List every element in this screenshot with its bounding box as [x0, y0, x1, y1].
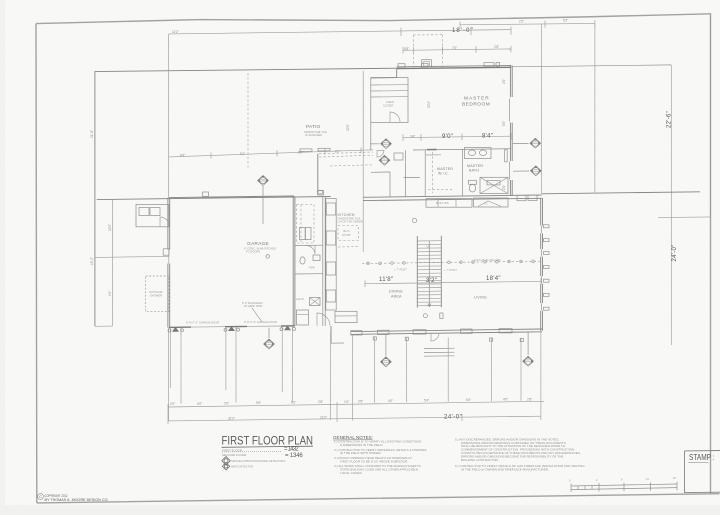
- svg-text:6'0": 6'0": [291, 401, 296, 405]
- svg-text:9'2": 9'2": [240, 152, 245, 156]
- svg-text:IN THE FIELD WITH OWNER.: IN THE FIELD WITH OWNER.: [340, 451, 382, 455]
- svg-text:8'4": 8'4": [482, 133, 493, 139]
- svg-text:STAMP :: STAMP :: [689, 453, 715, 462]
- svg-text:15'-2": 15'-2": [90, 257, 94, 265]
- svg-text:5'4": 5'4": [466, 398, 471, 402]
- svg-text:1'0": 1'0": [344, 400, 349, 404]
- svg-text:GARAGE: GARAGE: [247, 241, 269, 247]
- svg-text:4'0": 4'0": [388, 399, 393, 403]
- svg-text:9'0": 9'0": [197, 402, 202, 406]
- svg-text:HEAT DETECTOR: HEAT DETECTOR: [231, 465, 253, 469]
- svg-text:IN SAND BED: IN SAND BED: [305, 133, 322, 137]
- svg-text:8'4": 8'4": [180, 154, 185, 158]
- svg-text:5'2": 5'2": [563, 19, 568, 23]
- svg-text:UP: UP: [427, 245, 431, 249]
- svg-text:+ 7" POST: + 7" POST: [444, 268, 457, 272]
- svg-text:31'0": 31'0": [228, 417, 235, 421]
- svg-text:11'2": 11'2": [172, 30, 179, 34]
- svg-text:2'8": 2'8": [358, 400, 363, 404]
- svg-text:2'0": 2'0": [170, 402, 175, 406]
- svg-text:+ 7" POST: + 7" POST: [394, 268, 407, 272]
- svg-text:= 1432: = 1432: [284, 446, 299, 452]
- svg-text:5'4": 5'4": [424, 399, 429, 403]
- svg-text:13'4": 13'4": [427, 101, 431, 108]
- svg-text:BY THOMAS A. MOORE DESIGN CO.: BY THOMAS A. MOORE DESIGN CO.: [45, 498, 109, 502]
- svg-text:LAU'D: LAU'D: [296, 297, 304, 301]
- svg-text:OUTDOOR: OUTDOOR: [149, 290, 163, 294]
- svg-text:IN THE FIELD w/ OWNER AND FIRE: IN THE FIELD w/ OWNER AND FIREPLACE MANU…: [461, 467, 549, 471]
- svg-text:FIRST FLOOR TO BE 6'-10" ABOVE: FIRST FLOOR TO BE 6'-10" ABOVE SUBFLOOR.: [340, 459, 408, 463]
- svg-text:9'0": 9'0": [442, 134, 453, 140]
- svg-text:21'0": 21'0": [320, 415, 327, 419]
- svg-text:42"x84": 42"x84": [342, 233, 351, 237]
- svg-text:2'8": 2'8": [318, 400, 323, 404]
- svg-text:BUILT-INS: BUILT-INS: [436, 201, 449, 205]
- svg-text:& DIMENSIONS IN THE FIELD.: & DIMENSIONS IN THE FIELD.: [340, 443, 383, 447]
- svg-text:LINEN: LINEN: [386, 100, 394, 104]
- svg-text:7'0": 7'0": [452, 46, 457, 50]
- svg-text:W/ AZEK TRIM: W/ AZEK TRIM: [244, 304, 262, 308]
- svg-text:22'-6": 22'-6": [667, 111, 673, 128]
- svg-text:MASTER: MASTER: [437, 167, 453, 171]
- svg-text:2'0": 2'0": [502, 79, 506, 84]
- svg-text:LIVING: LIVING: [474, 296, 487, 300]
- svg-text:DINING: DINING: [389, 290, 403, 294]
- svg-text:3'2": 3'2": [426, 278, 437, 284]
- svg-text:CLOSET: CLOSET: [383, 104, 394, 108]
- svg-text:9'-0"x7'-0" GARAGE DOOR: 9'-0"x7'-0" GARAGE DOOR: [186, 320, 219, 324]
- svg-text:3'4": 3'4": [410, 135, 415, 139]
- svg-text:16: 16: [673, 476, 676, 480]
- svg-text:SHOWER: SHOWER: [150, 294, 162, 298]
- svg-text:TO DOORS: TO DOORS: [246, 250, 260, 254]
- svg-text:24'-0": 24'-0": [672, 244, 678, 261]
- svg-text:21'-8": 21'-8": [90, 130, 94, 138]
- svg-text:5'8": 5'8": [404, 47, 409, 51]
- svg-text:2'0": 2'0": [224, 401, 229, 405]
- svg-text:2'8": 2'8": [494, 45, 499, 49]
- svg-text:12: 12: [646, 477, 649, 481]
- svg-text:KITCHEN: KITCHEN: [338, 213, 355, 217]
- svg-text:9'4": 9'4": [108, 291, 112, 296]
- svg-text:24'-0": 24'-0": [444, 415, 462, 421]
- svg-text:18'4": 18'4": [486, 276, 501, 282]
- svg-text:PATIO: PATIO: [306, 124, 321, 130]
- svg-text:LAYOUT W/ OWNER: LAYOUT W/ OWNER: [338, 220, 364, 224]
- svg-text:SMOKE/CARBON MONOXIDE DETECTOR: SMOKE/CARBON MONOXIDE DETECTORS: [231, 459, 285, 463]
- svg-text:8'2": 8'2": [298, 151, 303, 155]
- svg-text:MASTER: MASTER: [464, 96, 489, 102]
- svg-text:LOCAL CODES.: LOCAL CODES.: [340, 471, 363, 475]
- svg-text:ISL'D: ISL'D: [343, 229, 350, 233]
- svg-text:TV: TV: [484, 202, 488, 206]
- svg-text:W.I.C.: W.I.C.: [438, 172, 449, 176]
- svg-text:4x12 LVL FLUSH ABV.: 4x12 LVL FLUSH ABV.: [474, 258, 501, 262]
- svg-text:4'0": 4'0": [503, 398, 508, 402]
- svg-text:MASTER: MASTER: [467, 164, 483, 168]
- svg-text:= 1346: = 1346: [285, 453, 303, 459]
- svg-text:PDR: PDR: [309, 266, 315, 270]
- svg-text:12'0": 12'0": [108, 224, 112, 231]
- svg-text:BATH: BATH: [469, 169, 479, 173]
- svg-text:6'0": 6'0": [502, 121, 506, 126]
- svg-text:18'-0": 18'-0": [452, 28, 473, 34]
- svg-text:BUILDING CONTRACTOR.: BUILDING CONTRACTOR.: [461, 458, 499, 462]
- svg-text:22'0": 22'0": [346, 124, 350, 131]
- svg-text:FIRST FLOOR PLAN: FIRST FLOOR PLAN: [222, 434, 314, 448]
- svg-text:11'8": 11'8": [379, 277, 393, 283]
- svg-text:2'8": 2'8": [527, 397, 532, 401]
- svg-text:2'0": 2'0": [502, 185, 506, 190]
- svg-text:9'9": 9'9": [256, 401, 261, 405]
- svg-text:AREA: AREA: [391, 295, 402, 299]
- svg-text:2'2": 2'2": [519, 19, 524, 23]
- svg-text:BEDROOM: BEDROOM: [462, 102, 490, 108]
- svg-text:C: C: [39, 495, 42, 499]
